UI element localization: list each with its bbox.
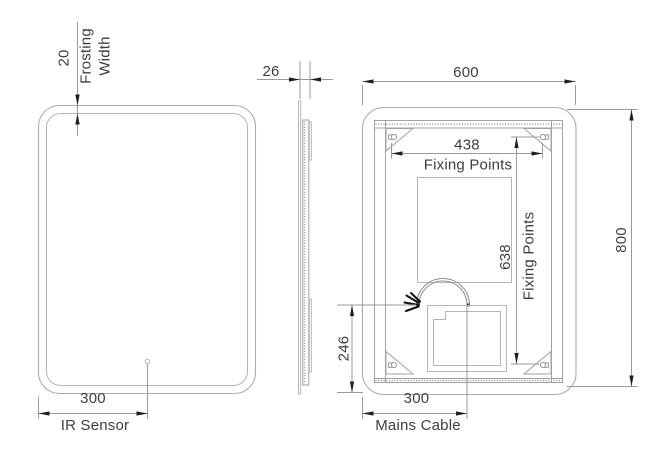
side-bracket-bottom [309, 299, 311, 372]
mains-cable-arc [405, 279, 470, 312]
fixing-bracket-bottom-left [386, 352, 413, 375]
front-frosting-line [47, 114, 248, 386]
back-height-value: 800 [613, 227, 630, 253]
thickness-value: 26 [262, 63, 279, 80]
side-view: 26 [257, 61, 333, 394]
arrowhead-down [75, 95, 79, 106]
dim-mains-cable-300: 300 Mains Cable [363, 305, 468, 434]
dim-thickness: 26 [257, 61, 333, 99]
side-body [303, 120, 309, 385]
mains-cable-label: Mains Cable [375, 417, 461, 434]
arrowhead-left [363, 79, 374, 83]
drawing-canvas: 20 Frosting Width 300 IR Sensor 2 [0, 0, 661, 449]
dim-width-600: 600 [363, 64, 576, 105]
frosting-width-label-line1: Frosting [77, 28, 94, 84]
arrowhead-up [629, 110, 633, 121]
arrowhead-right [565, 79, 576, 83]
fixing-height-label: Fixing Points [520, 212, 537, 300]
frosting-width-label-line2: Width [96, 36, 113, 75]
arrowhead-up [75, 114, 79, 125]
side-glass-edge [299, 101, 301, 394]
fixing-width-value: 438 [454, 137, 480, 154]
back-width-value: 600 [453, 64, 479, 81]
fixing-bracket-top-left [386, 129, 413, 152]
arrowhead-down [514, 353, 518, 364]
fixing-width-label: Fixing Points [424, 157, 512, 174]
mirror-technical-drawing: 20 Frosting Width 300 IR Sensor 2 [0, 0, 661, 449]
arrowhead-right [532, 151, 543, 155]
arrowhead-right [289, 77, 300, 81]
frosting-width-value: 20 [55, 49, 72, 66]
back-view: 600 800 438 Fixing Points [335, 64, 637, 434]
fixing-bracket-top-right [524, 129, 551, 152]
arrowhead-down [629, 376, 633, 387]
arrowhead-down [350, 382, 354, 393]
fixing-bracket-bottom-right [524, 352, 551, 375]
arrowhead-left [363, 411, 374, 415]
cable-offset-value: 246 [335, 336, 352, 362]
fixing-height-value: 638 [497, 244, 514, 270]
arrowhead-right [456, 411, 467, 415]
ir-sensor-label: IR Sensor [61, 417, 130, 434]
dim-ir-sensor: 300 IR Sensor [39, 364, 148, 434]
front-mirror-outline [39, 106, 256, 394]
dim-height-800: 800 [567, 110, 638, 387]
arrowhead-left [310, 77, 321, 81]
arrowhead-right [137, 411, 148, 415]
ir-sensor-value: 300 [80, 390, 106, 407]
side-bracket-top [309, 122, 311, 160]
arrowhead-left [39, 411, 50, 415]
arrowhead-left [392, 151, 403, 155]
arrowhead-up [514, 137, 518, 148]
dim-fixing-width-438: 438 Fixing Points [392, 137, 543, 174]
mains-cable-value: 300 [404, 390, 430, 407]
dim-cable-height-246: 246 [335, 305, 416, 393]
ir-sensor-dot [145, 359, 150, 364]
front-view: 20 Frosting Width 300 IR Sensor [39, 22, 256, 434]
dim-frosting-width: 20 Frosting Width [55, 22, 113, 136]
arrowhead-up [350, 305, 354, 316]
